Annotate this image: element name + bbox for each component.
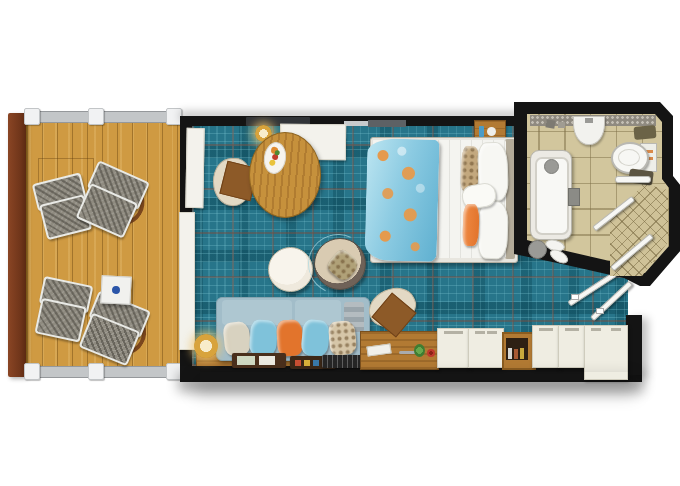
tray-dark	[322, 355, 362, 368]
bed-pillow-white	[477, 200, 509, 259]
balcony-rail-top	[26, 111, 182, 123]
tub-ledge	[568, 188, 580, 206]
cup	[487, 127, 496, 136]
balcony	[0, 0, 200, 486]
door-handle	[571, 294, 579, 300]
minibar	[502, 332, 536, 370]
faucet	[585, 118, 593, 123]
sofa-pillow-orange	[276, 319, 304, 356]
balcony-edge-rail	[8, 113, 26, 377]
dining-table	[249, 132, 321, 218]
item	[313, 360, 319, 366]
balcony-sliding-door	[179, 212, 195, 350]
wardrobe-cabinet	[437, 328, 470, 368]
sofa-pillow-beige	[222, 321, 251, 357]
brush	[366, 343, 391, 356]
rail-post	[24, 363, 40, 380]
paper	[259, 356, 275, 365]
sofa-pillow-blue	[249, 319, 278, 357]
bottle	[508, 348, 512, 359]
bathtub	[530, 150, 572, 240]
fruit	[269, 159, 276, 166]
item	[304, 360, 310, 366]
balcony-door-curtain	[185, 128, 204, 208]
wardrobe-cabinet	[532, 325, 560, 368]
floor-lamp	[194, 334, 218, 358]
bed-throw	[364, 138, 439, 262]
fruit	[274, 150, 280, 156]
towel-bar	[615, 176, 651, 183]
sofa-pillow-blue	[300, 319, 330, 357]
amenity	[558, 122, 565, 128]
rail-post	[24, 108, 40, 125]
balcony-rail-bottom	[26, 366, 182, 378]
towel	[633, 125, 656, 140]
wall-vent	[368, 120, 406, 127]
paper	[237, 356, 255, 365]
floor-plan	[0, 0, 680, 486]
balcony-side-table	[100, 275, 131, 305]
bottle	[514, 349, 518, 359]
bottle	[479, 126, 484, 137]
rail-post	[88, 363, 104, 380]
bottle	[520, 348, 524, 359]
rail-post	[88, 108, 104, 125]
round-lounge-chair	[314, 238, 366, 290]
bed-pillow-orange	[462, 204, 479, 247]
greens	[414, 344, 425, 357]
table-emblem	[112, 286, 120, 294]
amenity	[545, 119, 555, 128]
tub-faucet	[544, 159, 559, 174]
tray-books	[232, 353, 286, 368]
rose	[427, 349, 435, 357]
door-handle	[596, 308, 604, 314]
ottoman	[268, 247, 313, 292]
wardrobe-cabinet	[468, 328, 504, 368]
vanity-chair	[366, 289, 420, 337]
toilet-seat	[618, 149, 640, 166]
item	[295, 360, 301, 366]
plan-shadow	[200, 372, 630, 380]
sofa-pillow-floral	[328, 320, 358, 356]
wall-right	[626, 315, 642, 375]
wardrobe-cabinet	[558, 325, 586, 368]
